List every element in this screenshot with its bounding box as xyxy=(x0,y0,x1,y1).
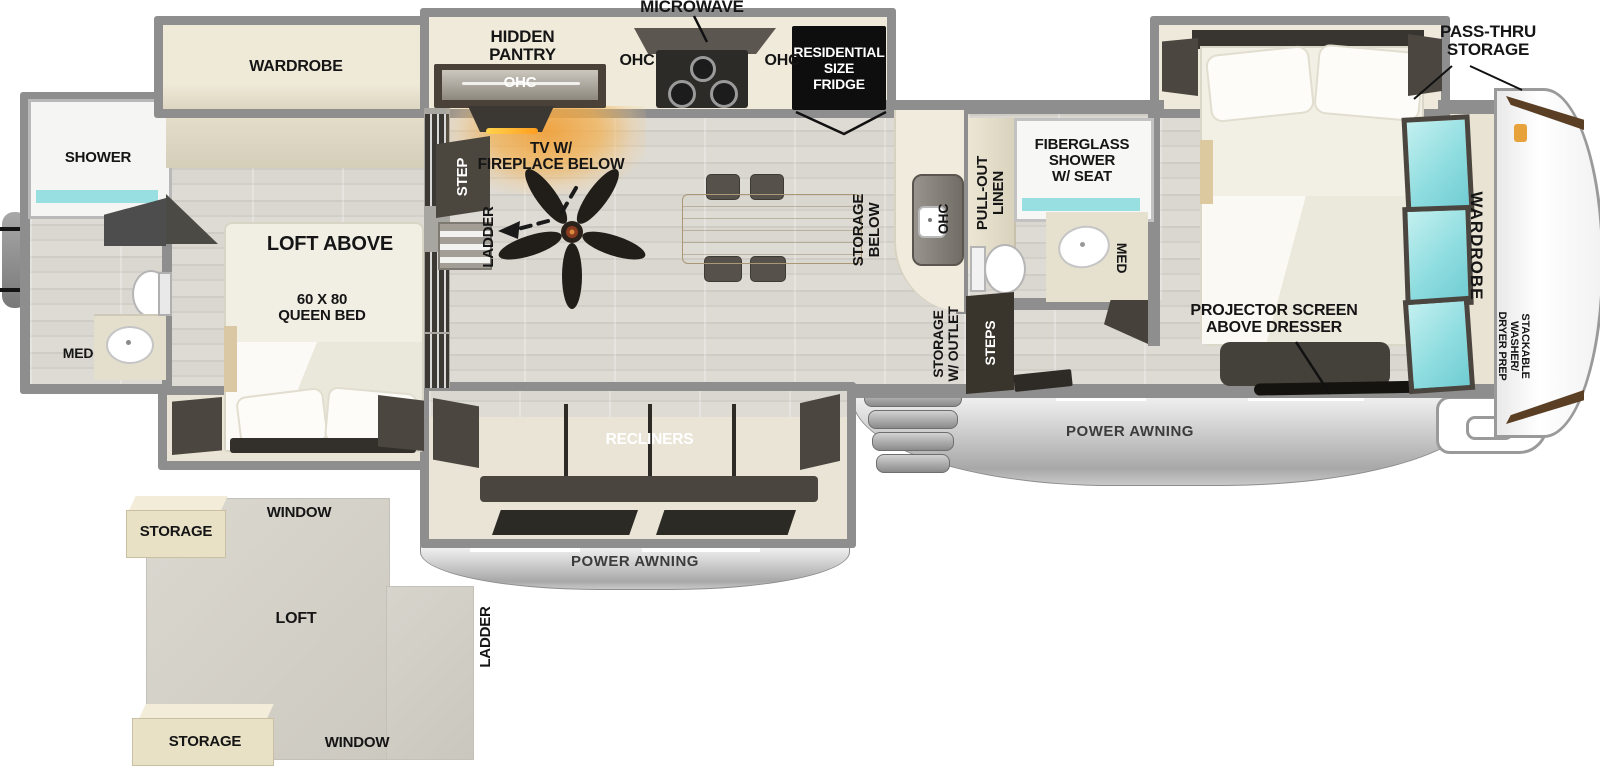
island-table xyxy=(682,194,862,264)
recliner-footmat xyxy=(656,510,796,535)
mid-shower-water xyxy=(1022,198,1140,211)
power-awning-left-label: POWER AWNING xyxy=(540,550,730,574)
rv-floorplan: POWER AWNING POWER AWNING SHOWER MED WAR… xyxy=(0,0,1600,773)
entry-step xyxy=(876,454,950,473)
rear-slide-window-left xyxy=(172,397,222,455)
storage-outlet-label: STORAGE W/ OUTLET xyxy=(930,294,962,394)
power-awning-right-label: POWER AWNING xyxy=(1030,420,1230,444)
ohc-left-label: OHC xyxy=(606,48,668,74)
rear-shower-water xyxy=(36,190,158,203)
fiberglass-shower-label: FIBERGLASS SHOWER W/ SEAT xyxy=(1020,124,1144,198)
burner xyxy=(668,80,696,108)
recliner-footmat xyxy=(492,510,638,535)
recliner-window-right xyxy=(800,394,840,470)
wardrobe-slide-label: WARDROBE xyxy=(216,54,376,80)
steps-label: STEPS xyxy=(982,301,998,385)
loft-storage-bottom-label: STORAGE xyxy=(150,730,260,754)
pull-out-linen-label: PULL-OUT LINEN xyxy=(974,131,1008,255)
pass-thru-label: PASS-THRU STORAGE xyxy=(1408,16,1568,66)
pass-thru-leader-right xyxy=(1470,66,1522,90)
bedroom-window-left xyxy=(1162,38,1198,96)
ohc-sink-label: OHC xyxy=(935,193,951,245)
rear-slide-window-right xyxy=(378,395,424,451)
loft-window-top-label: WINDOW xyxy=(254,502,344,524)
loft-above-label: LOFT ABOVE xyxy=(240,230,420,260)
recliner-seat xyxy=(480,476,818,502)
front-pillow xyxy=(1205,45,1316,123)
front-wardrobe-label: WARDROBE xyxy=(1466,178,1486,314)
wardrobe-mirror xyxy=(1401,114,1474,215)
bath-faucet xyxy=(1080,242,1085,247)
bed-accent xyxy=(1200,140,1213,204)
recliner-window-left xyxy=(433,398,479,468)
burner xyxy=(690,56,716,82)
mid-med-label: MED xyxy=(1114,230,1130,286)
loft-window-bottom-label: WINDOW xyxy=(312,732,402,754)
ladder-label: LADDER xyxy=(480,191,498,283)
step-label: STEP xyxy=(454,145,472,209)
recliners-label: RECLINERS xyxy=(572,428,727,452)
ohc-pantry-label: OHC xyxy=(470,70,570,96)
burner xyxy=(710,80,738,108)
bed-accent xyxy=(224,326,237,392)
wardrobe-front xyxy=(166,110,432,168)
ohc-right-label: OHC xyxy=(748,48,816,74)
projector-label: PROJECTOR SCREEN ABOVE DRESSER xyxy=(1168,300,1380,340)
cap-logo-chip xyxy=(1514,124,1527,142)
rear-sink xyxy=(106,326,154,364)
rear-toilet-tank xyxy=(158,272,172,316)
loft-label: LOFT xyxy=(260,606,332,632)
dresser xyxy=(1220,342,1390,386)
entry-step xyxy=(872,432,954,451)
rear-shower-label: SHOWER xyxy=(48,146,148,170)
kitchen-faucet xyxy=(928,218,932,222)
wardrobe-mirror xyxy=(1403,296,1475,394)
loft-rail xyxy=(425,334,449,388)
rear-sink-faucet xyxy=(126,340,131,345)
loft-ladder-label: LADDER xyxy=(478,591,494,683)
wardrobe-mirror xyxy=(1402,205,1473,307)
washer-dryer-label: STACKABLE WASHER/ DRYER PREP xyxy=(1500,292,1526,400)
hidden-pantry-label: HIDDEN PANTRY xyxy=(440,26,605,66)
entry-step xyxy=(868,410,958,429)
storage-below-label: STORAGE BELOW xyxy=(850,178,884,282)
queen-bed-label: 60 X 80 QUEEN BED xyxy=(252,288,392,328)
loft-storage-top-label: STORAGE xyxy=(130,520,222,544)
microwave-label: MICROWAVE xyxy=(620,0,764,16)
top-wall-front xyxy=(1438,100,1500,114)
rear-med-label: MED xyxy=(54,342,102,364)
